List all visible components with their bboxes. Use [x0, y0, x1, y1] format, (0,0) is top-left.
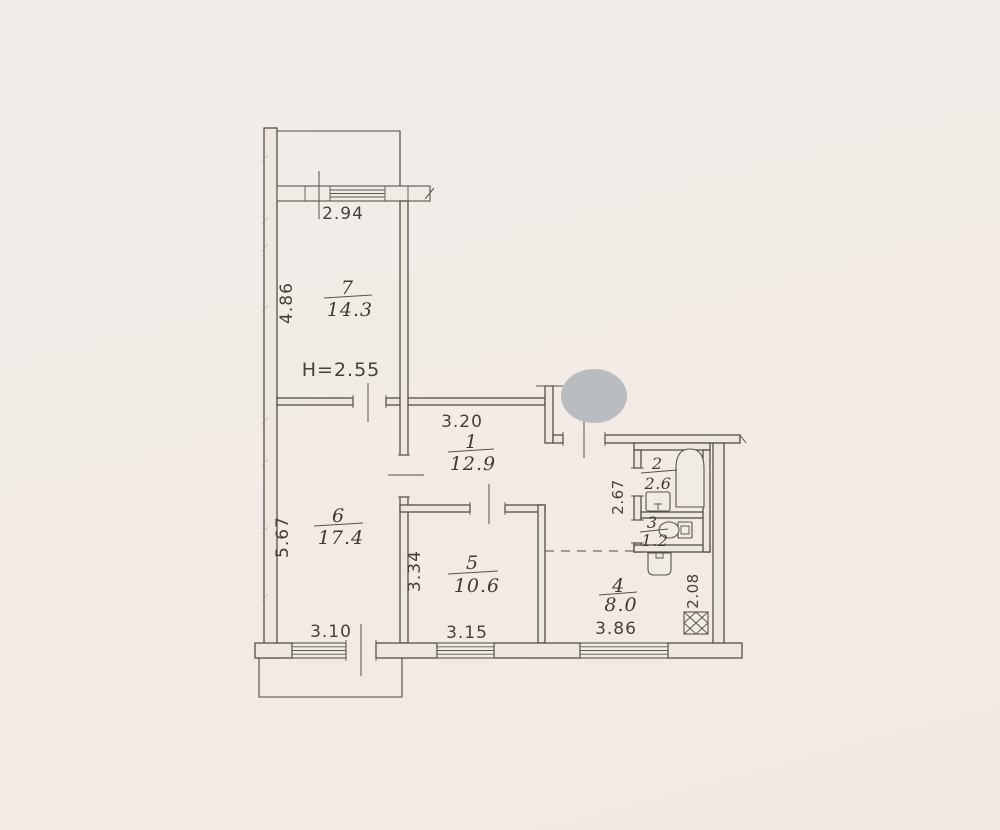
room2-area: 2.6 — [644, 474, 672, 493]
room1-area: 12.9 — [450, 453, 496, 475]
right-outer-wall — [713, 443, 724, 652]
left-outer-wall — [264, 128, 277, 658]
room6-area: 17.4 — [318, 527, 364, 549]
room7-number: 7 — [341, 277, 354, 299]
kitchen-window — [580, 643, 668, 658]
dim-kitchen-depth: 2.08 — [684, 573, 702, 608]
bathtub-icon — [676, 449, 704, 507]
wash-basin-icon — [646, 492, 670, 511]
room3-number: 3 — [647, 513, 657, 532]
room5-area: 10.6 — [454, 575, 500, 597]
redaction-blob — [561, 369, 627, 423]
room5-number: 5 — [466, 552, 478, 574]
room1-label: 1 12.9 — [448, 431, 496, 475]
room2-number: 2 — [651, 454, 662, 473]
room7-label: 7 14.3 — [324, 277, 373, 321]
ceiling-height-note: H=2.55 — [302, 359, 381, 381]
room6-label: 6 17.4 — [314, 505, 364, 549]
dim-top-window: 2.94 — [322, 204, 364, 224]
room2-label: 2 2.6 — [641, 454, 677, 493]
room1-number: 1 — [465, 431, 477, 453]
dim-hall-width: 3.20 — [441, 412, 483, 432]
scanned-floor-plan-photo: 2.94 4.86 H=2.55 3.20 5.67 3.34 3.10 3.1… — [0, 0, 1000, 830]
loggia-top-outline — [277, 131, 400, 186]
room5-label: 5 10.6 — [448, 552, 500, 597]
floor-plan-drawing: 2.94 4.86 H=2.55 3.20 5.67 3.34 3.10 3.1… — [0, 0, 1000, 830]
kitchen-sink-icon — [648, 553, 671, 575]
room4-label: 4 8.0 — [599, 575, 638, 616]
ventilation-shaft-icon — [684, 612, 708, 634]
dim-room5-width: 3.15 — [446, 623, 488, 643]
dim-bath-depth: 2.67 — [609, 479, 627, 514]
dim-room6-width: 3.10 — [310, 622, 352, 642]
labels: 2.94 4.86 H=2.55 3.20 5.67 3.34 3.10 3.1… — [273, 204, 702, 643]
dim-kitchen-width: 3.86 — [595, 619, 637, 639]
room5-window — [437, 643, 494, 658]
dim-room7-depth: 4.86 — [277, 282, 297, 324]
dim-room5-depth: 3.34 — [405, 550, 425, 592]
room6-window — [292, 643, 346, 658]
dim-room6-depth: 5.67 — [273, 516, 293, 558]
room7-area: 14.3 — [327, 299, 373, 321]
room7-room6-wall — [277, 383, 545, 422]
room6-number: 6 — [332, 505, 344, 527]
balcony-outline — [259, 658, 402, 697]
room3-area: 1.2 — [642, 531, 669, 550]
room4-area: 8.0 — [604, 594, 637, 616]
